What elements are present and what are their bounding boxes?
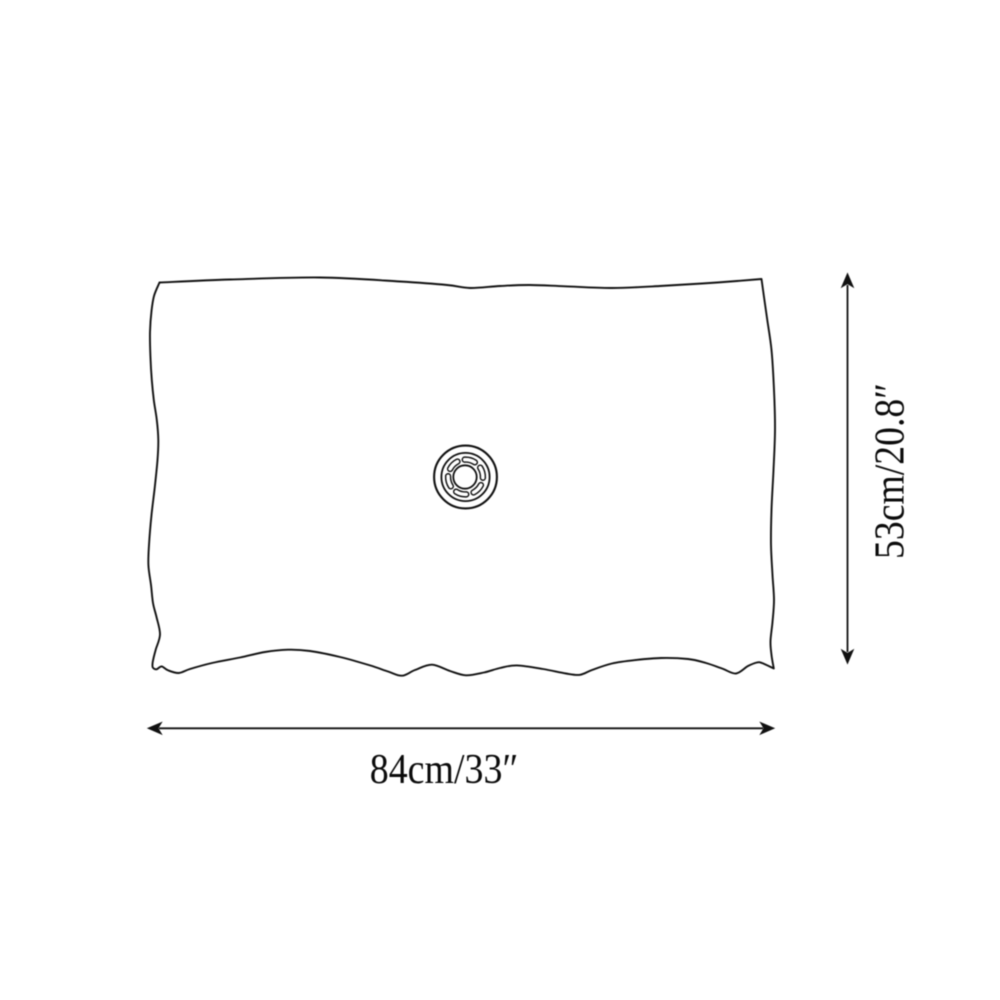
svg-text:84cm/33″: 84cm/33″ <box>370 746 519 793</box>
svg-text:53cm/20.8″: 53cm/20.8″ <box>867 383 914 559</box>
